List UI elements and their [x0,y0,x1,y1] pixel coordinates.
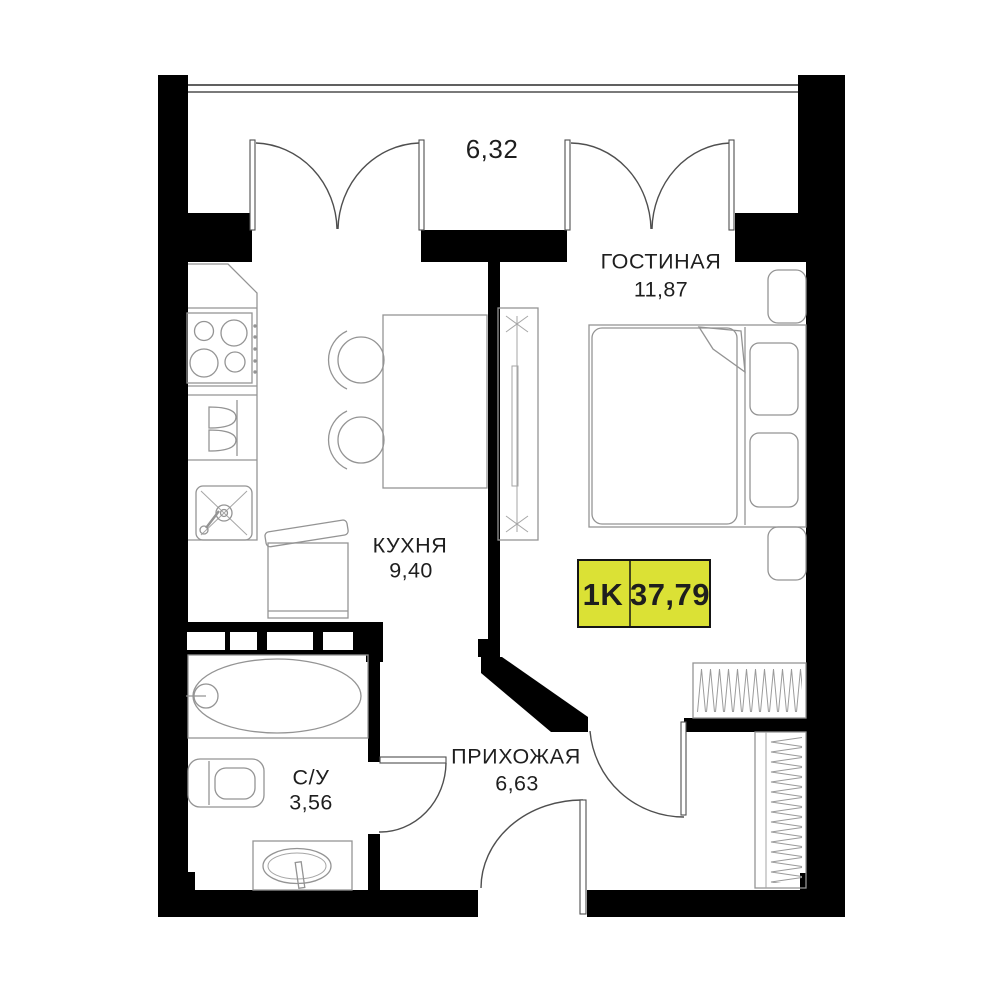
bath-area-label: 3,56 [289,791,332,815]
wall-left-outer [158,75,188,917]
door-leaf [681,722,686,815]
stove-knob [253,359,256,362]
wall-left-step [188,872,195,890]
door-leaf [729,140,734,230]
living-name-label: ГОСТИНАЯ [601,250,722,274]
living-area-label: 11,87 [634,278,688,302]
hanger-zigzag [769,737,804,883]
wardrobe-hangers-icon [693,663,806,718]
shaft-opening [267,632,313,650]
hanger-zigzag [697,667,802,714]
wall-right-outer [806,262,845,917]
shaft-opening [187,632,225,650]
stove-knob [253,370,256,373]
shaft-opening [323,632,353,650]
wall-balcony-left-block [186,213,252,262]
wall-balcony-middle [421,230,567,262]
wall-hall-living [684,718,806,732]
badge-type-label: 1K [583,577,624,612]
balcony-area-label: 6,32 [466,134,519,164]
hall-name-label: ПРИХОЖАЯ [451,745,581,769]
wall-bottom-right-step [800,873,845,917]
wall-bottom-left [158,890,478,917]
wall-jamb-center [478,639,500,657]
floor-plan-svg: 6,32 [0,0,1000,1000]
wall-right-balcony [798,75,845,262]
wall-balcony-right-block [735,213,801,262]
bath-name-label: С/У [293,766,330,790]
kitchen-area-label: 9,40 [389,559,432,583]
hall-area-label: 6,63 [495,772,538,796]
wall-bottom-right [587,890,806,917]
shaft-opening [230,632,257,650]
stove-knob [253,324,256,327]
kitchen-name-label: КУХНЯ [373,534,448,558]
door-leaf [565,140,570,230]
wall-bath-right-lower [368,834,380,890]
wall-bath-right-upper [368,662,380,762]
badge-area-label: 37,79 [630,577,710,612]
door-leaf [419,140,424,230]
shaft-openings [187,632,353,650]
floor-plan-image: 6,32 [0,0,1000,1000]
apartment-badge: 1K 37,79 [578,560,710,627]
door-leaf [380,757,446,763]
door-leaf [580,800,586,914]
door-leaf [250,140,255,230]
stove-knob [253,335,256,338]
stove-knob [253,347,256,350]
